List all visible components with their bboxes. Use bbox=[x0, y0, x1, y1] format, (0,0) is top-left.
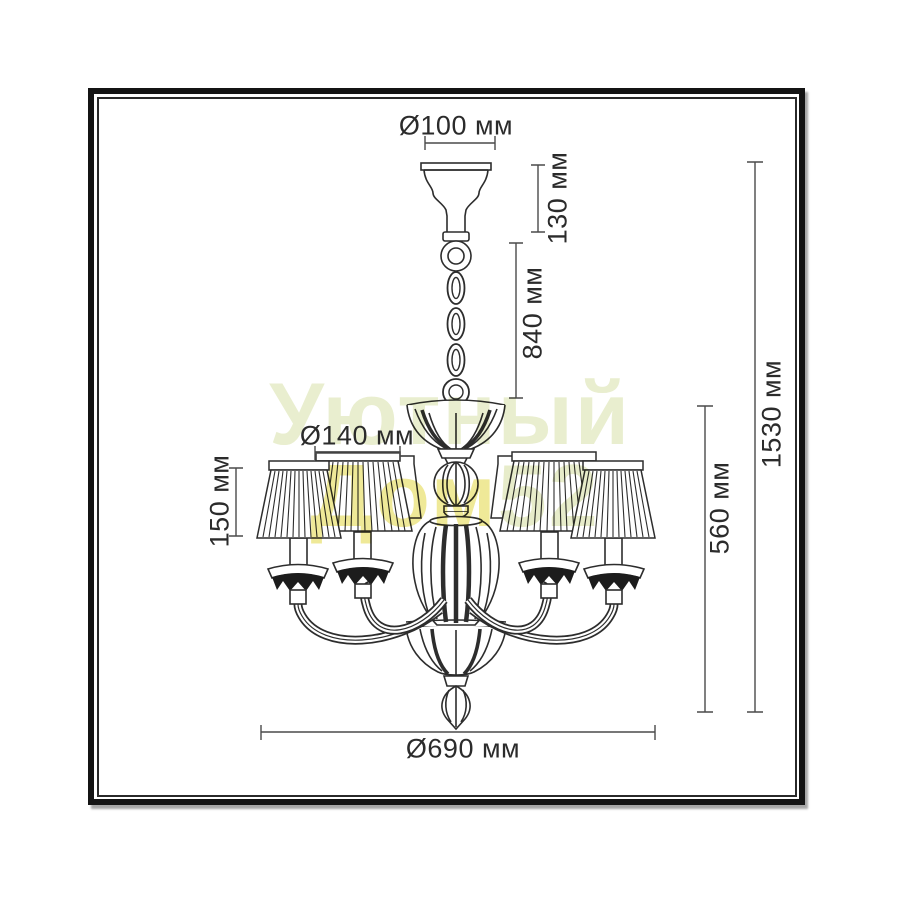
dim-label-canopy-diameter: Ø100 мм bbox=[399, 111, 513, 142]
chain-group bbox=[443, 272, 469, 405]
screenshot-canvas: Уютный Дом52 Ø100 мм 130 мм 840 мм 1530 … bbox=[0, 0, 900, 900]
center-column-group bbox=[406, 400, 506, 729]
canopy-group bbox=[421, 163, 491, 271]
dim-label-total-height: 1530 мм bbox=[757, 360, 788, 468]
dim-label-fixture-diameter: Ø690 мм bbox=[406, 734, 520, 765]
dim-label-canopy-height: 130 мм bbox=[543, 152, 574, 245]
dim-label-chain-length: 840 мм bbox=[518, 267, 549, 360]
dim-label-shade-diameter: Ø140 мм bbox=[300, 421, 414, 452]
dim-label-shade-height: 150 мм bbox=[205, 455, 236, 548]
dim-label-body-height: 560 мм bbox=[705, 462, 736, 555]
